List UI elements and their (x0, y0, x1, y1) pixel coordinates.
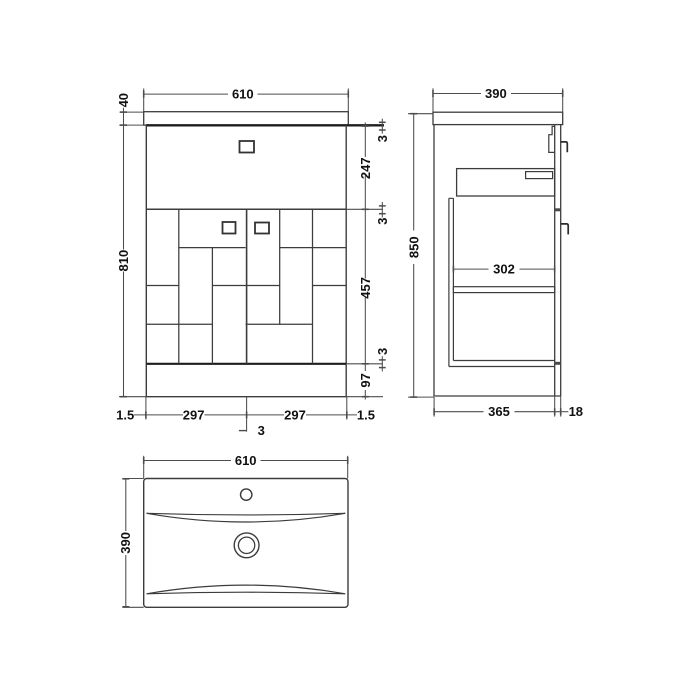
svg-text:297: 297 (284, 407, 306, 422)
svg-text:610: 610 (232, 87, 254, 102)
svg-text:3: 3 (375, 218, 390, 225)
svg-text:610: 610 (235, 453, 257, 468)
svg-text:97: 97 (358, 373, 373, 387)
svg-text:3: 3 (258, 423, 265, 438)
svg-text:302: 302 (493, 262, 515, 277)
svg-text:365: 365 (488, 404, 510, 419)
svg-text:457: 457 (358, 277, 373, 299)
svg-text:390: 390 (118, 532, 133, 554)
svg-text:3: 3 (375, 135, 390, 142)
svg-text:40: 40 (116, 93, 131, 107)
svg-text:1.5: 1.5 (116, 407, 134, 422)
svg-text:18: 18 (569, 404, 583, 419)
svg-text:1.5: 1.5 (357, 407, 375, 422)
svg-text:297: 297 (183, 407, 205, 422)
svg-text:3: 3 (375, 348, 390, 355)
svg-text:390: 390 (485, 86, 507, 101)
svg-text:247: 247 (358, 157, 373, 179)
svg-text:810: 810 (116, 250, 131, 272)
svg-text:850: 850 (406, 236, 421, 258)
